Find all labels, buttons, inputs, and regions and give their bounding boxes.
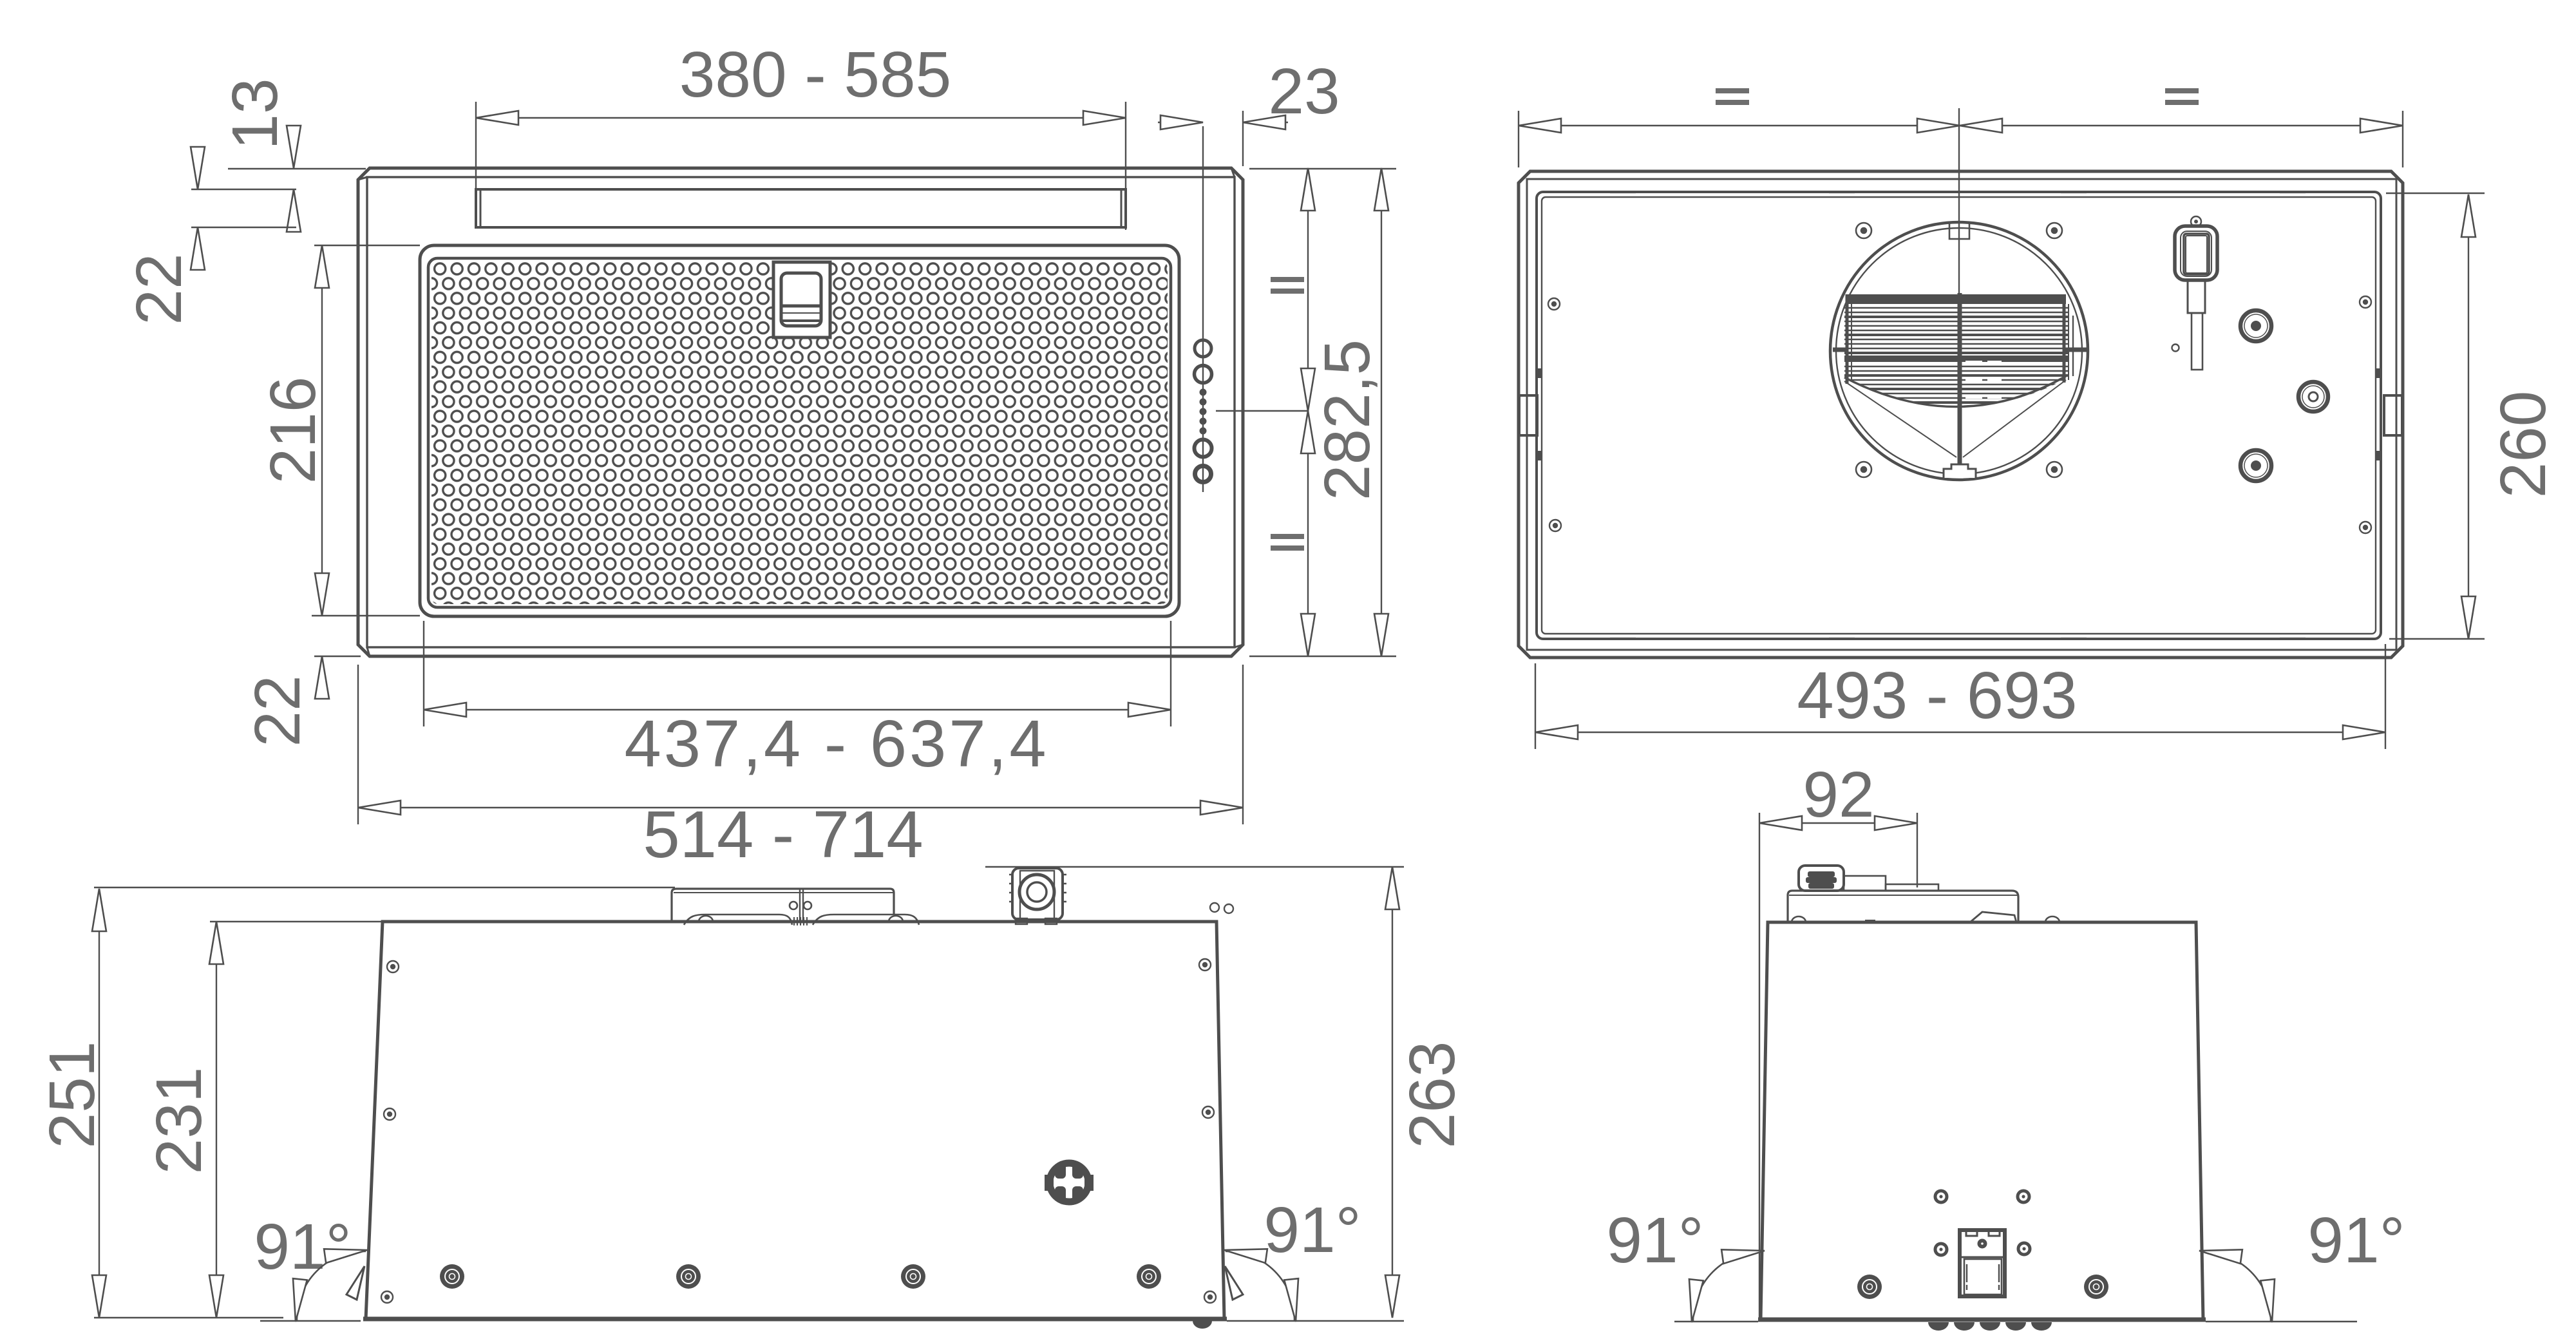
svg-text:231: 231 (143, 1067, 215, 1175)
svg-text:91°: 91° (2307, 1204, 2405, 1276)
svg-text:260: 260 (2487, 391, 2559, 498)
svg-text:251: 251 (36, 1041, 108, 1149)
svg-text:282,5: 282,5 (1311, 339, 1383, 500)
svg-text:92: 92 (1803, 759, 1874, 831)
svg-text:514 - 714: 514 - 714 (643, 797, 923, 871)
svg-text:13: 13 (219, 78, 291, 149)
svg-text:22: 22 (241, 675, 314, 746)
svg-text:263: 263 (1396, 1041, 1468, 1149)
svg-text:91°: 91° (1606, 1204, 1703, 1276)
svg-text:91°: 91° (1264, 1194, 1361, 1266)
svg-text:437,4 - 637,4: 437,4 - 637,4 (624, 706, 1048, 781)
svg-text:22: 22 (123, 253, 195, 325)
svg-text:380 - 585: 380 - 585 (679, 39, 952, 111)
svg-text:216: 216 (257, 377, 329, 484)
svg-text:91°: 91° (254, 1211, 351, 1283)
svg-text:493 - 693: 493 - 693 (1797, 658, 2077, 732)
